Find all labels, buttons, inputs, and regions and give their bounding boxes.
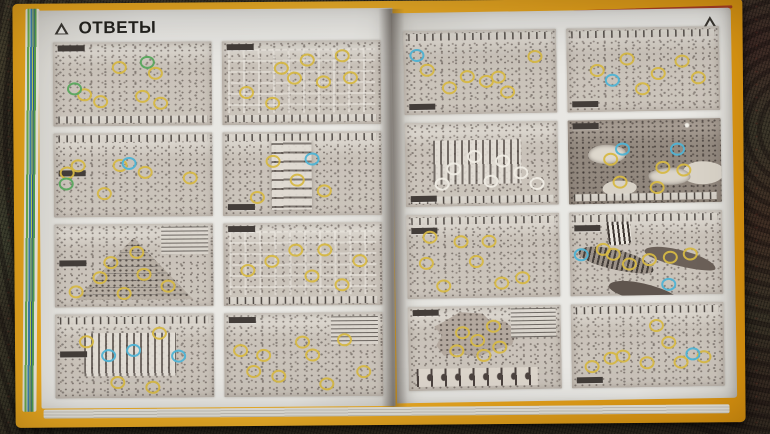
thumbnail-title-block	[229, 317, 256, 323]
answer-circle	[423, 231, 438, 244]
answer-circle	[492, 340, 507, 353]
answer-circle	[605, 74, 620, 87]
answer-book: ОТВЕТЫ	[12, 0, 745, 428]
thumbnail-title-block	[412, 310, 438, 316]
answer-circle	[116, 286, 131, 299]
answer-circle	[161, 279, 176, 292]
answer-circle	[250, 190, 265, 203]
answer-circle	[495, 154, 510, 167]
answer-thumbnail-aqueduct-bridge	[222, 131, 382, 216]
book-gutter-shadow	[378, 9, 407, 407]
answer-circle	[690, 71, 705, 84]
answer-circle	[111, 376, 126, 389]
answer-circle	[274, 62, 289, 75]
legend-strip	[228, 296, 378, 304]
answer-circle	[256, 349, 271, 362]
answer-circle	[494, 277, 509, 290]
answer-circle	[641, 253, 656, 266]
answers-header: ОТВЕТЫ	[54, 18, 156, 39]
answer-circle	[58, 178, 73, 191]
answer-circle	[469, 255, 484, 268]
answer-thumbnail-kingdom-map-with-portraits	[408, 305, 562, 392]
answer-circle	[299, 53, 314, 66]
right-page	[391, 8, 737, 404]
thumbnail-title-block	[574, 225, 600, 231]
legend-strip	[574, 213, 718, 222]
answer-thumbnail-war-galleys	[569, 210, 723, 297]
answer-thumbnail-market-courtyard	[405, 121, 559, 208]
answer-circle	[246, 364, 261, 377]
thumbnail-title-block	[410, 196, 436, 202]
answer-circle	[352, 254, 367, 267]
answer-circle	[455, 326, 470, 339]
thumbnail-title-block	[57, 46, 84, 52]
legend-strip	[58, 135, 208, 143]
answer-circle	[305, 349, 320, 362]
answer-circle	[589, 64, 604, 77]
answer-circle	[663, 250, 678, 263]
legend-strip	[573, 192, 717, 201]
legend-strip	[571, 29, 715, 38]
answer-circle	[585, 360, 600, 373]
legend-strip	[411, 215, 555, 224]
legend-strip	[575, 305, 719, 314]
answer-circle	[153, 96, 168, 109]
answer-circle	[152, 327, 167, 340]
answer-circle	[103, 256, 118, 269]
answer-circle	[603, 153, 618, 166]
answer-circle	[409, 49, 424, 62]
thumbnail-title-block	[60, 351, 87, 357]
answer-circle	[574, 248, 589, 261]
answer-circle	[272, 369, 287, 382]
answer-circle	[442, 82, 457, 95]
thumbnail-title-block	[228, 204, 255, 210]
answer-circle	[233, 344, 248, 357]
answer-circle	[356, 365, 371, 378]
answer-circle	[135, 90, 150, 103]
answer-circle	[138, 165, 153, 178]
answer-circle	[93, 95, 108, 108]
pyramid-logo-icon	[54, 22, 68, 34]
answer-thumbnail-battlefield	[224, 312, 384, 397]
answer-circle	[515, 271, 530, 284]
answer-circle	[595, 243, 610, 256]
answer-circle	[436, 279, 451, 292]
answer-circle	[288, 243, 303, 256]
answer-circle	[649, 180, 664, 193]
answer-circle	[640, 356, 655, 369]
answer-circle	[650, 67, 665, 80]
legend-strip	[58, 116, 208, 124]
answer-circle	[264, 255, 279, 268]
answer-circle	[96, 187, 111, 200]
answer-thumbnail-temple-precinct-grid	[223, 221, 383, 306]
answer-circle	[490, 70, 505, 83]
answer-circle	[527, 50, 542, 63]
answer-circle	[481, 235, 496, 248]
answer-circle	[111, 61, 126, 74]
answer-circle	[92, 272, 107, 285]
answer-thumbnail-desert-camp	[53, 41, 213, 126]
answer-circle	[514, 166, 529, 179]
answer-circle	[316, 184, 331, 197]
answer-circle	[620, 52, 635, 65]
answer-circle	[317, 243, 332, 256]
answer-circle	[79, 336, 94, 349]
page-title: ОТВЕТЫ	[78, 18, 156, 39]
thumbnail-title-block	[572, 101, 598, 107]
thumbnail-title-block	[572, 123, 598, 129]
answer-thumbnail-great-pyramid-construction	[54, 223, 214, 308]
answer-circle	[655, 161, 670, 174]
answer-circle	[449, 344, 464, 357]
answer-circle	[676, 163, 691, 176]
answer-circle	[305, 152, 320, 165]
answer-circle	[662, 278, 677, 291]
thumbnail-title-block	[576, 377, 602, 383]
answer-circle	[635, 82, 650, 95]
answer-circle	[334, 50, 349, 63]
legend-strip	[227, 133, 377, 141]
answer-circle	[335, 278, 350, 291]
answer-circle	[171, 350, 186, 363]
answer-circle	[483, 175, 498, 188]
answer-circle	[529, 177, 544, 190]
legend-strip	[510, 308, 556, 337]
answer-thumbnail-columned-temple	[55, 314, 215, 399]
answer-circle	[337, 334, 352, 347]
answer-thumbnail-flooded-town	[53, 132, 213, 217]
answer-thumbnail-royal-tombs-valley	[571, 302, 725, 389]
left-answer-grid	[53, 40, 384, 399]
answer-circle	[420, 64, 435, 77]
answer-circle	[129, 246, 144, 259]
answer-thumbnail-city-crossroads	[222, 40, 382, 125]
answer-thumbnail-harvest-fields	[403, 29, 557, 116]
answer-circle	[182, 172, 197, 185]
right-answer-grid	[403, 26, 725, 391]
legend-strip	[60, 316, 210, 324]
thumbnail-title-block	[228, 226, 255, 232]
answer-thumbnail-palace-corridors	[406, 213, 560, 300]
answer-circle	[470, 334, 485, 347]
answer-circle	[661, 336, 676, 349]
answer-circle	[434, 177, 449, 190]
thumbnail-title-block	[226, 44, 253, 50]
answer-circle	[460, 70, 475, 83]
answer-circle	[304, 270, 319, 283]
answer-circle	[477, 349, 492, 362]
answer-circle	[265, 154, 280, 167]
answer-circle	[148, 67, 163, 80]
legend-strip	[161, 226, 209, 255]
answer-circle	[500, 86, 515, 99]
answer-circle	[241, 264, 256, 277]
answer-circle	[675, 54, 690, 67]
answer-circle	[615, 142, 630, 155]
answer-circle	[467, 150, 482, 163]
answer-circle	[265, 97, 280, 110]
answer-circle	[137, 268, 152, 281]
answer-circle	[419, 257, 434, 270]
page-fore-edge-stripes	[22, 9, 39, 412]
answer-circle	[122, 157, 137, 170]
answer-circle	[319, 377, 334, 390]
answer-circle	[621, 258, 636, 271]
thumbnail-title-block	[59, 261, 86, 267]
answer-circle	[446, 162, 461, 175]
answer-circle	[612, 176, 627, 189]
thumbnail-title-block	[409, 104, 435, 110]
answer-circle	[315, 75, 330, 88]
answer-circle	[69, 285, 84, 298]
answer-circle	[287, 72, 302, 85]
answer-thumbnail-walled-necropolis	[566, 26, 720, 113]
answer-circle	[670, 142, 685, 155]
answer-circle	[342, 71, 357, 84]
answer-circle	[67, 82, 82, 95]
answer-circle	[295, 336, 310, 349]
answer-circle	[289, 173, 304, 186]
answer-circle	[239, 86, 254, 99]
left-page: ОТВЕТЫ	[38, 8, 395, 409]
photo-of-open-answer-book: ОТВЕТЫ	[0, 0, 770, 434]
answer-circle	[648, 319, 663, 332]
answer-thumbnail-night-islands	[568, 118, 722, 205]
legend-strip	[408, 31, 552, 40]
answer-circle	[146, 380, 161, 393]
answer-circle	[101, 349, 116, 362]
answer-circle	[126, 344, 141, 357]
legend-strip	[227, 114, 377, 122]
answer-circle	[485, 320, 500, 333]
answer-circle	[682, 247, 697, 260]
answer-circle	[615, 350, 630, 363]
answer-circle	[453, 235, 468, 248]
